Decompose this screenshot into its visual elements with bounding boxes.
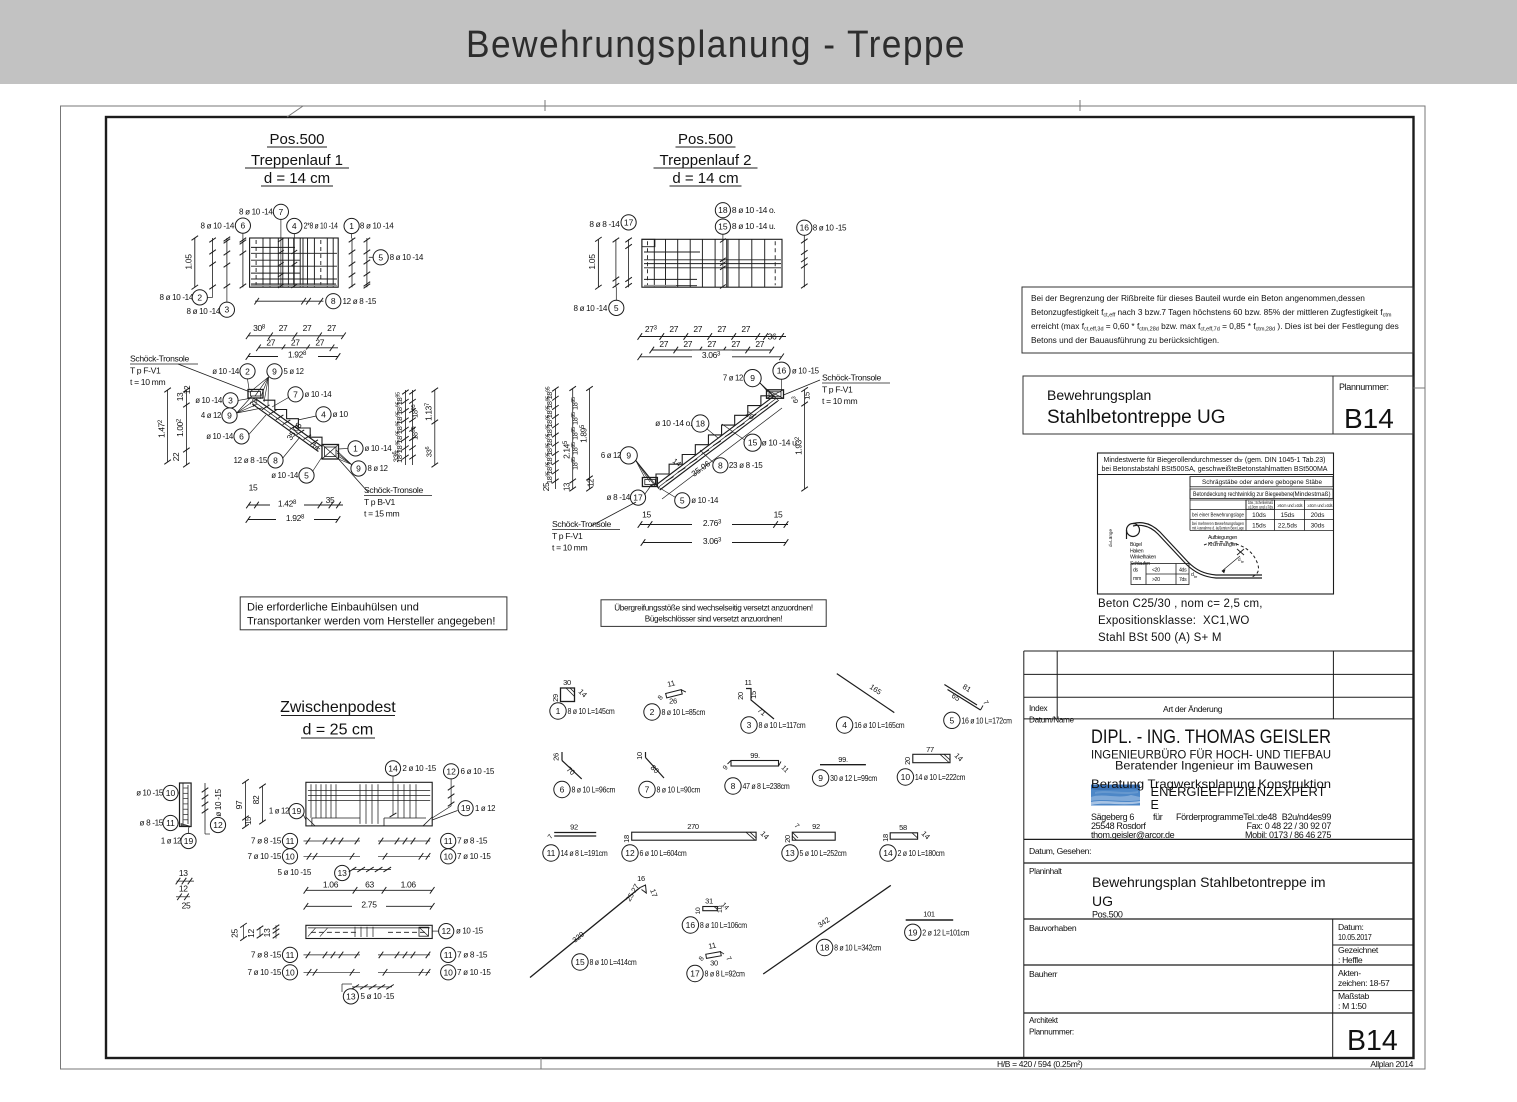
svg-text:Akten-: Akten- (1338, 968, 1361, 978)
svg-text:8 ø 10 -15: 8 ø 10 -15 (813, 222, 847, 232)
svg-text:7 ø 8 -15: 7 ø 8 -15 (251, 950, 282, 960)
svg-text:8 ø 10 L=145cm: 8 ø 10 L=145cm (568, 706, 615, 716)
svg-text:6: 6 (239, 431, 244, 441)
svg-text:27: 27 (707, 339, 716, 349)
svg-text:T p F-V1: T p F-V1 (130, 366, 161, 376)
svg-text:Bügel: Bügel (1130, 542, 1142, 548)
svg-text:13: 13 (179, 868, 188, 878)
svg-text:8 ø 10 -14: 8 ø 10 -14 (160, 292, 194, 302)
svg-text:≥10cm und ≥7ds: ≥10cm und ≥7ds (1248, 505, 1273, 510)
svg-text:27: 27 (741, 324, 750, 334)
svg-text:11: 11 (547, 848, 556, 858)
svg-text:Beton C25/30 , nom c= 2,5 cm,: Beton C25/30 , nom c= 2,5 cm, (1098, 598, 1263, 610)
svg-text:Pos.500: Pos.500 (678, 131, 733, 148)
svg-text:5: 5 (378, 252, 383, 262)
svg-text:Plannummer:: Plannummer: (1029, 1028, 1074, 1037)
svg-text:7: 7 (279, 207, 284, 217)
svg-text:Gezeichnet: Gezeichnet (1338, 945, 1379, 955)
svg-text:19: 19 (184, 836, 194, 846)
svg-text:ø 10 -14 o.: ø 10 -14 o. (655, 418, 692, 428)
svg-text:Winkelhaken: Winkelhaken (1130, 555, 1156, 561)
svg-text:1.05: 1.05 (184, 254, 194, 270)
svg-text:8 ø 12: 8 ø 12 (368, 463, 389, 473)
svg-text:58: 58 (899, 823, 907, 832)
svg-text:t = 10 mm: t = 10 mm (552, 543, 587, 553)
svg-text:19: 19 (908, 927, 918, 937)
svg-text:27: 27 (266, 337, 275, 347)
svg-text:11: 11 (744, 678, 751, 687)
svg-text:270: 270 (687, 822, 699, 831)
svg-text:5: 5 (614, 303, 619, 313)
svg-text:47 ø 8 L=238cm: 47 ø 8 L=238cm (743, 781, 790, 791)
svg-text:ø 10 -14: ø 10 -14 (365, 443, 392, 453)
svg-text:3: 3 (747, 720, 752, 730)
svg-text:10: 10 (695, 907, 702, 914)
svg-text:27: 27 (327, 323, 336, 333)
svg-text:5 ø 10 -15: 5 ø 10 -15 (361, 991, 395, 1001)
svg-text:4: 4 (842, 720, 847, 730)
svg-text:Bewehrungsplan: Bewehrungsplan (1047, 387, 1151, 403)
svg-text:18: 18 (718, 205, 728, 215)
svg-text:Pos.500: Pos.500 (269, 131, 324, 148)
svg-text:8: 8 (718, 460, 723, 470)
svg-text:Schrägstäbe oder andere geboge: Schrägstäbe oder andere gebogene Stäbe (1202, 479, 1322, 486)
svg-text:7 ø 8 -15: 7 ø 8 -15 (251, 836, 282, 846)
svg-text:23 ø 8 -15: 23 ø 8 -15 (729, 460, 763, 470)
svg-text:thom.geisler@arcor.de: thom.geisler@arcor.de (1091, 830, 1175, 840)
svg-text:2: 2 (245, 366, 250, 376)
svg-text:30: 30 (710, 959, 718, 968)
svg-text:30ds: 30ds (1311, 523, 1325, 530)
svg-text:14: 14 (388, 763, 398, 773)
svg-text:Treppenlauf 2: Treppenlauf 2 (659, 152, 751, 169)
svg-text:92: 92 (570, 823, 578, 832)
svg-text:27: 27 (693, 324, 702, 334)
svg-text:19: 19 (461, 803, 471, 813)
svg-text:15: 15 (575, 957, 585, 967)
svg-text:2*8 ø 10 -14: 2*8 ø 10 -14 (304, 220, 339, 230)
svg-text:ø 10 -14: ø 10 -14 (206, 431, 233, 441)
svg-text:1 ø 12: 1 ø 12 (161, 836, 182, 846)
svg-text:18: 18 (820, 943, 830, 953)
svg-text:≥5cm und ≥3ds: ≥5cm und ≥3ds (1278, 503, 1303, 508)
svg-text:15ds: 15ds (1281, 512, 1295, 519)
svg-text:8 ø 10 -14: 8 ø 10 -14 (574, 303, 608, 313)
svg-text:16: 16 (686, 920, 696, 930)
svg-text:82: 82 (251, 795, 261, 804)
svg-text:99.: 99. (838, 755, 848, 764)
svg-text:t = 10 mm: t = 10 mm (822, 396, 857, 406)
svg-text:6: 6 (241, 221, 246, 231)
svg-text:13: 13 (785, 848, 795, 858)
svg-text:Stahlbetontreppe UG: Stahlbetontreppe UG (1047, 407, 1226, 428)
svg-text:B14: B14 (1347, 1025, 1398, 1057)
svg-text:zeichen: 18-57: zeichen: 18-57 (1338, 978, 1390, 988)
svg-text:ø 10 -14: ø 10 -14 (691, 495, 718, 505)
svg-text:15: 15 (749, 691, 758, 699)
svg-text:5 ø 12: 5 ø 12 (284, 366, 305, 376)
svg-text:8 ø 10 -14: 8 ø 10 -14 (187, 306, 221, 316)
svg-text:: M 1:50: : M 1:50 (1338, 1001, 1367, 1011)
svg-text:für: für (1153, 812, 1163, 822)
svg-text:27: 27 (755, 339, 764, 349)
svg-text:11: 11 (444, 950, 453, 960)
svg-text:16 ø 10 L=172cm: 16 ø 10 L=172cm (961, 715, 1012, 725)
svg-text:DIPL. - ING. THOMAS GEISLER: DIPL. - ING. THOMAS GEISLER (1091, 726, 1331, 748)
svg-text:2: 2 (650, 707, 655, 717)
svg-text:ø 10 -14: ø 10 -14 (271, 470, 298, 480)
svg-text:T p F-V1: T p F-V1 (552, 531, 583, 541)
svg-text:8 ø 8 -14: 8 ø 8 -14 (589, 219, 620, 229)
svg-text:8 ø 10 L=414cm: 8 ø 10 L=414cm (590, 957, 637, 967)
svg-text:Schöck-Tronsole: Schöck-Tronsole (822, 373, 881, 383)
svg-text:8 ø 10 -14: 8 ø 10 -14 (239, 207, 273, 217)
svg-text:29: 29 (551, 694, 560, 702)
svg-text:2 ø 12 L=101cm: 2 ø 12 L=101cm (922, 927, 969, 937)
svg-text:26: 26 (552, 753, 561, 761)
svg-text:mit Ausnahme d. äußersten Bew.: mit Ausnahme d. äußersten Bew.Lage (1192, 526, 1244, 531)
svg-text:Schöck-Tronsole: Schöck-Tronsole (552, 519, 611, 529)
svg-text:<20: <20 (1152, 568, 1160, 574)
svg-text:9: 9 (818, 773, 823, 783)
svg-text:13: 13 (262, 928, 272, 937)
svg-text:T p B-V1: T p B-V1 (364, 497, 396, 507)
svg-text:Betondeckung rechtwinklig zur: Betondeckung rechtwinklig zur Biegeebene (1193, 491, 1293, 498)
svg-text:11: 11 (166, 818, 175, 828)
svg-text:Mindestwerte für Biegerollendu: Mindestwerte für Biegerollendurchmesser … (1104, 455, 1326, 464)
svg-text:12: 12 (586, 479, 595, 487)
svg-text:10: 10 (285, 851, 295, 861)
svg-text:14 ø 8 L=191cm: 14 ø 8 L=191cm (561, 848, 608, 858)
svg-text:18: 18 (622, 835, 631, 843)
svg-text:35: 35 (326, 495, 335, 505)
svg-text:8 ø 10 -14: 8 ø 10 -14 (360, 220, 394, 230)
svg-text:Datum:: Datum: (1338, 922, 1364, 932)
svg-text:bei Betonstabstahl BSt500SA, g: bei Betonstabstahl BSt500SA, geschweißte… (1102, 464, 1328, 473)
svg-text:6 ø 10 L=604cm: 6 ø 10 L=604cm (640, 848, 687, 858)
svg-text:8 ø 10 L=342cm: 8 ø 10 L=342cm (834, 943, 881, 953)
svg-text:5: 5 (304, 471, 309, 481)
svg-text:12: 12 (246, 929, 256, 938)
svg-text:Bauvorhaben: Bauvorhaben (1029, 923, 1077, 933)
svg-text:Bauherr: Bauherr (1029, 969, 1058, 979)
svg-text:9: 9 (272, 366, 277, 376)
svg-text:20: 20 (903, 757, 912, 765)
svg-text:7ds: 7ds (1179, 577, 1187, 583)
svg-text:16: 16 (800, 223, 810, 233)
svg-text:17: 17 (633, 493, 643, 503)
svg-text:8 ø 10 L=117cm: 8 ø 10 L=117cm (759, 720, 806, 730)
svg-text:9: 9 (356, 464, 361, 474)
svg-text:2 ø 10 L=180cm: 2 ø 10 L=180cm (898, 848, 945, 858)
svg-text:Maßstab: Maßstab (1338, 991, 1370, 1001)
svg-text:ø 8 -14: ø 8 -14 (607, 492, 631, 502)
svg-text:6 ø 12: 6 ø 12 (601, 450, 622, 460)
svg-text:99.: 99. (750, 751, 760, 760)
svg-text:8 ø 8 L=92cm: 8 ø 8 L=92cm (705, 969, 746, 979)
svg-text:Pos.500: Pos.500 (1092, 910, 1123, 920)
svg-text:7 ø 10 -15: 7 ø 10 -15 (457, 967, 491, 977)
svg-text:Aufbiegungen: Aufbiegungen (1208, 535, 1237, 541)
svg-text:Betonzugfestigkeit fct,eff nac: Betonzugfestigkeit fct,eff nach 3 bzw.7 … (1031, 307, 1392, 319)
svg-text:92: 92 (812, 822, 820, 831)
svg-text:Zwischenpodest: Zwischenpodest (280, 699, 396, 716)
svg-text:Schöck-Tronsole: Schöck-Tronsole (130, 354, 189, 364)
svg-text:Transportanker werden vom Hers: Transportanker werden vom Hersteller ang… (247, 616, 495, 628)
svg-text:15: 15 (244, 816, 253, 825)
svg-text:1.06: 1.06 (323, 879, 339, 889)
svg-text:11: 11 (286, 836, 295, 846)
svg-text:8 ø 10 L=96cm: 8 ø 10 L=96cm (572, 785, 616, 795)
svg-text:18: 18 (696, 419, 706, 429)
svg-text:16: 16 (637, 874, 645, 883)
svg-text:ø 10 -14: ø 10 -14 (195, 395, 222, 405)
svg-text:Index: Index (1029, 704, 1048, 713)
svg-text:ø 10 -14: ø 10 -14 (305, 389, 332, 399)
svg-text:1: 1 (353, 443, 358, 453)
svg-text:Datum/Name: Datum/Name (1029, 716, 1075, 725)
svg-text:Expositionsklasse: XC1,WO: Expositionsklasse: XC1,WO (1098, 615, 1250, 627)
svg-text:UG: UG (1092, 893, 1113, 909)
svg-text:Betons und der Bauausführung z: Betons und der Bauausführung zu berücksi… (1031, 335, 1219, 345)
svg-text:10: 10 (443, 967, 453, 977)
svg-text:14 ø 10 L=222cm: 14 ø 10 L=222cm (915, 772, 966, 782)
svg-text:mm: mm (1133, 576, 1141, 582)
svg-text:27: 27 (669, 324, 678, 334)
svg-text:13: 13 (563, 483, 572, 491)
svg-text:4: 4 (292, 221, 297, 231)
svg-text:12: 12 (441, 926, 451, 936)
svg-text:27: 27 (303, 323, 312, 333)
svg-text:2 ø 10 -15: 2 ø 10 -15 (402, 763, 436, 773)
svg-text:Art der Änderung: Art der Änderung (1163, 704, 1223, 714)
svg-text:8: 8 (273, 455, 278, 465)
svg-text:1 ø 12: 1 ø 12 (269, 806, 290, 816)
svg-text:Datum, Gesehen:: Datum, Gesehen: (1029, 846, 1091, 856)
svg-text:27: 27 (279, 323, 288, 333)
svg-text:T p F-V1: T p F-V1 (822, 385, 853, 395)
svg-text:10: 10 (635, 752, 644, 760)
svg-text:8 ø 10 -14 o.: 8 ø 10 -14 o. (732, 205, 776, 215)
svg-text:10: 10 (443, 851, 453, 861)
svg-text:Mobil: 0173 / 86 46 275: Mobil: 0173 / 86 46 275 (1245, 830, 1331, 840)
svg-text:1: 1 (349, 221, 354, 231)
svg-text:17: 17 (624, 217, 634, 227)
svg-text:1: 1 (556, 706, 561, 716)
svg-text:7 ø 10 -15: 7 ø 10 -15 (457, 851, 491, 861)
svg-text:4 ø 12: 4 ø 12 (201, 410, 222, 420)
svg-text:10: 10 (166, 788, 176, 798)
svg-text:Bewehrungsplan Stahlbetontrepp: Bewehrungsplan Stahlbetontreppe im (1092, 874, 1326, 890)
svg-text:10ds: 10ds (1252, 512, 1266, 519)
svg-text:Haken: Haken (1130, 548, 1144, 554)
svg-text:16 ø 10 L=165cm: 16 ø 10 L=165cm (854, 720, 905, 730)
svg-text:H/B = 420 / 594 (0.25m²): H/B = 420 / 594 (0.25m²) (997, 1059, 1083, 1069)
svg-text:26: 26 (669, 697, 677, 706)
svg-text:22: 22 (171, 452, 181, 461)
svg-text:12: 12 (446, 766, 456, 776)
svg-text:5: 5 (950, 715, 955, 725)
svg-text:Bewehrungsplanung - Treppe: Bewehrungsplanung - Treppe (466, 24, 966, 66)
svg-text:6: 6 (560, 785, 565, 795)
svg-text:16: 16 (777, 366, 787, 376)
svg-text:13: 13 (346, 991, 356, 1001)
svg-text:1.05: 1.05 (587, 254, 597, 270)
svg-text:7 ø 10 -15: 7 ø 10 -15 (248, 851, 282, 861)
svg-text:4: 4 (321, 409, 326, 419)
svg-text:ds: ds (1133, 568, 1139, 574)
svg-text:8 ø 10 -14 u.: 8 ø 10 -14 u. (732, 221, 776, 231)
svg-text:15: 15 (642, 510, 651, 520)
svg-text:12: 12 (625, 848, 635, 858)
svg-text:8 ø 10 -14: 8 ø 10 -14 (390, 252, 424, 262)
svg-text:15: 15 (718, 222, 728, 232)
svg-text:Beratender Ingenieur im: Beratender Ingenieur im Bauwesen (1115, 759, 1313, 773)
svg-text:Stahl BSt 500 (A) S+ M: Stahl BSt 500 (A) S+ M (1098, 632, 1222, 644)
svg-text:12 ø 8 -15: 12 ø 8 -15 (343, 296, 377, 306)
svg-text:15: 15 (748, 438, 758, 448)
svg-text:7: 7 (645, 785, 650, 795)
svg-text:12 ø 8 -15: 12 ø 8 -15 (234, 455, 268, 465)
svg-text:25: 25 (182, 901, 191, 911)
svg-text:14: 14 (883, 848, 893, 858)
svg-text:27: 27 (659, 339, 668, 349)
svg-text:t = 10 mm: t = 10 mm (130, 377, 165, 387)
svg-text:ø 8 -15: ø 8 -15 (140, 818, 164, 828)
svg-text:ENERGIEEFFIZIENZEXPERT: ENERGIEEFFIZIENZEXPERT (1151, 785, 1326, 799)
svg-text:Architekt: Architekt (1029, 1016, 1059, 1025)
svg-text:d = 25 cm: d = 25 cm (303, 722, 374, 739)
svg-text:d = 14 cm: d = 14 cm (672, 170, 738, 187)
svg-text:17: 17 (690, 969, 700, 979)
svg-text:15: 15 (249, 483, 258, 493)
svg-text:Allplan 2014: Allplan 2014 (1370, 1059, 1413, 1069)
svg-text:25: 25 (541, 482, 551, 491)
svg-text:27: 27 (315, 337, 324, 347)
svg-text:20: 20 (736, 692, 745, 700)
svg-text:12: 12 (179, 884, 188, 894)
svg-text:8: 8 (731, 781, 736, 791)
svg-text:(Mindestmaß): (Mindestmaß) (1293, 491, 1331, 498)
svg-text:bei einer Bewehrungslage: bei einer Bewehrungslage (1192, 513, 1244, 519)
svg-text:101: 101 (923, 910, 935, 919)
svg-text:7 ø 12: 7 ø 12 (723, 373, 744, 383)
svg-text:Bügelschlösser sind versetzt a: Bügelschlösser sind versetzt anzuordnen! (645, 615, 783, 624)
svg-text:3: 3 (225, 305, 230, 315)
svg-text:10: 10 (717, 905, 724, 913)
svg-text:1.06: 1.06 (401, 879, 417, 889)
svg-text:13: 13 (337, 868, 347, 878)
svg-text:10.05.2017: 10.05.2017 (1338, 932, 1372, 942)
svg-text:d=Länge: d=Länge (1108, 529, 1113, 547)
svg-text:27: 27 (291, 337, 300, 347)
svg-text:10: 10 (901, 772, 911, 782)
svg-text:d = 14 cm: d = 14 cm (264, 170, 330, 187)
svg-text:1 ø 12: 1 ø 12 (475, 803, 496, 813)
svg-text:7: 7 (293, 389, 298, 399)
svg-text:Schlaufen: Schlaufen (1130, 561, 1150, 567)
svg-text:15: 15 (803, 392, 812, 400)
svg-text:Schöck-Tronsole: Schöck-Tronsole (364, 485, 423, 495)
svg-text:36: 36 (768, 331, 777, 341)
svg-text:≥3cm und ≥3ds: ≥3cm und ≥3ds (1308, 503, 1333, 508)
svg-text:30: 30 (563, 678, 571, 687)
svg-text:Übergreifungsstöße sind wechse: Übergreifungsstöße sind wechselseitig ve… (614, 603, 813, 613)
svg-text:7 ø 8 -15: 7 ø 8 -15 (457, 836, 488, 846)
svg-text:9: 9 (750, 373, 755, 383)
svg-text:8 ø 10 L=85cm: 8 ø 10 L=85cm (662, 707, 706, 717)
svg-text:22,5ds: 22,5ds (1278, 523, 1297, 530)
svg-text:15ds: 15ds (1252, 523, 1266, 530)
svg-text:8 ø 10 L=90cm: 8 ø 10 L=90cm (657, 785, 701, 795)
svg-text:Die erforderliche Einbauhülsen: Die erforderliche Einbauhülsen und (247, 602, 419, 614)
svg-text:ø 10 -15: ø 10 -15 (456, 926, 483, 936)
svg-text:: Heffle: : Heffle (1338, 955, 1363, 965)
svg-text:t = 15 mm: t = 15 mm (364, 509, 399, 519)
svg-text:7 ø 10 -15: 7 ø 10 -15 (248, 967, 282, 977)
svg-text:20ds: 20ds (1311, 512, 1325, 519)
svg-text:5 ø 10 L=252cm: 5 ø 10 L=252cm (800, 848, 847, 858)
svg-text:2.75: 2.75 (361, 900, 377, 910)
svg-text:ø 10: ø 10 (333, 409, 349, 419)
svg-text:27: 27 (683, 339, 692, 349)
svg-text:11: 11 (286, 950, 295, 960)
svg-text:B14: B14 (1344, 403, 1394, 434)
svg-text:27: 27 (717, 324, 726, 334)
svg-text:9: 9 (227, 411, 232, 421)
svg-text:9: 9 (626, 450, 631, 460)
svg-text:5: 5 (680, 495, 685, 505)
svg-text:3: 3 (228, 395, 233, 405)
svg-text:25: 25 (230, 929, 240, 938)
svg-text:ø 10 -15: ø 10 -15 (792, 365, 819, 375)
svg-text:27: 27 (731, 339, 740, 349)
svg-text:ø 10 -15: ø 10 -15 (136, 788, 163, 798)
svg-text:Planinhalt: Planinhalt (1029, 867, 1063, 876)
svg-text:7 ø 8 -15: 7 ø 8 -15 (457, 950, 488, 960)
svg-text:63: 63 (365, 879, 374, 889)
svg-text:11: 11 (444, 836, 453, 846)
svg-text:>20: >20 (1152, 577, 1160, 583)
svg-text:6 ø 10 -15: 6 ø 10 -15 (461, 766, 495, 776)
svg-text:12: 12 (213, 820, 223, 830)
svg-text:97: 97 (234, 800, 244, 809)
svg-text:10: 10 (285, 967, 295, 977)
svg-text:E: E (1151, 798, 1159, 812)
svg-text:Bei der Begrenzung der Rißbrei: Bei der Begrenzung der Rißbreite für die… (1031, 293, 1365, 303)
svg-text:5 ø 10 -15: 5 ø 10 -15 (278, 867, 312, 877)
svg-text:20: 20 (783, 835, 792, 843)
svg-text:Treppenlauf 1: Treppenlauf 1 (251, 152, 343, 169)
svg-text:30 ø 12 L=99cm: 30 ø 12 L=99cm (830, 773, 877, 783)
svg-text:2: 2 (197, 292, 202, 302)
svg-text:4ds: 4ds (1179, 568, 1187, 574)
svg-text:77: 77 (926, 745, 934, 754)
svg-text:31: 31 (705, 897, 713, 906)
svg-text:19: 19 (292, 806, 302, 816)
svg-text:12: 12 (182, 385, 192, 394)
svg-text:Plannummer:: Plannummer: (1339, 382, 1389, 392)
svg-text:18: 18 (881, 834, 890, 842)
svg-text:15: 15 (774, 510, 783, 520)
svg-text:8: 8 (331, 296, 336, 306)
svg-text:8 ø 10 L=106cm: 8 ø 10 L=106cm (700, 920, 747, 930)
svg-text:ø 10 -14: ø 10 -14 (212, 366, 239, 376)
svg-text:8 ø 10 -14: 8 ø 10 -14 (201, 220, 235, 230)
